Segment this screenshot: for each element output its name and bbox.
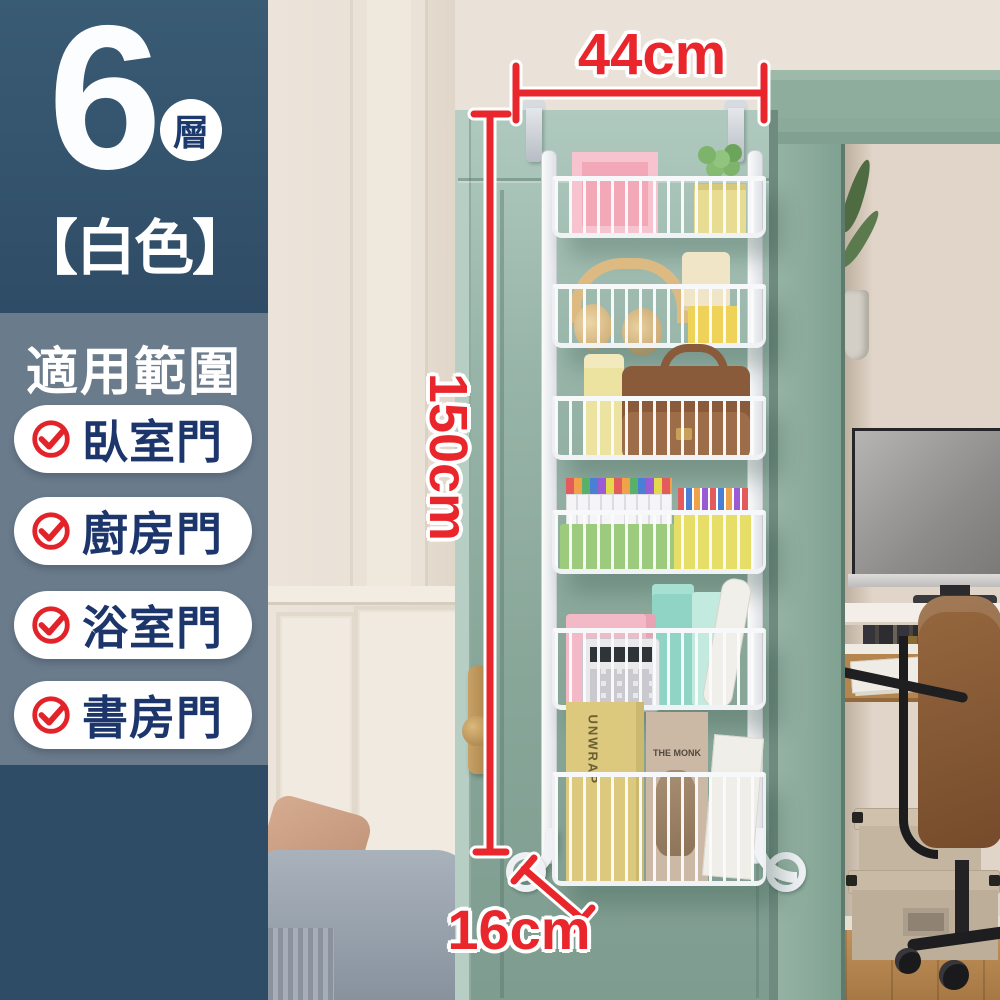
depth-dimension-label: 16cm	[439, 902, 599, 958]
box-label-slot	[903, 908, 949, 936]
wainscot-rail	[268, 586, 458, 605]
rack-tube-end	[506, 852, 546, 892]
chair-caster-wheel	[939, 960, 969, 990]
monitor-bottom-bar	[848, 574, 1000, 587]
applicable-item-label: 廚房門	[82, 498, 223, 564]
applicable-item-study-door: 書房門	[14, 681, 252, 749]
door-stile	[455, 110, 471, 1000]
rack-basket-2	[552, 284, 766, 348]
monitor-screen	[852, 428, 1000, 580]
applicable-item-label: 浴室門	[82, 592, 223, 658]
doorway-header-frame	[765, 70, 1000, 144]
chair-caster-wheel	[895, 948, 921, 974]
rack-tube-end	[766, 852, 806, 892]
rack-basket-5	[552, 628, 766, 710]
check-icon	[28, 416, 74, 462]
basket-wire-front	[552, 772, 766, 886]
magazine-title: THE MONK	[648, 748, 706, 758]
applicable-item-bedroom-door: 臥室門	[14, 405, 252, 473]
applicable-item-bathroom-door: 浴室門	[14, 591, 252, 659]
colored-pens	[678, 488, 748, 512]
applicable-item-label: 臥室門	[82, 406, 223, 472]
succulent-plant	[698, 146, 716, 164]
applicable-item-kitchen-door: 廚房門	[14, 497, 252, 565]
marker-caps	[566, 478, 672, 494]
check-icon	[28, 508, 74, 554]
rack-basket-6: UNWRAP THE MONK	[552, 772, 766, 886]
tier-unit-label: 層	[173, 104, 209, 156]
box-corner-clip	[846, 875, 857, 886]
height-dimension-label: 150cm	[421, 372, 475, 542]
sidebar-footer	[0, 765, 268, 1000]
basket-wire-front	[552, 284, 766, 348]
info-sidebar: 6 層 【白色】 適用範圍 臥室門 廚房門	[0, 0, 268, 1000]
color-variant-label: 【白色】	[0, 200, 268, 287]
basket-wire-front	[552, 628, 766, 710]
door-handle-knob	[462, 716, 492, 746]
basket-wire-front	[552, 510, 766, 574]
box-corner-clip	[989, 875, 1000, 886]
sofa-throw-blanket	[268, 928, 334, 1000]
rack-rail-left	[541, 150, 557, 864]
check-icon	[28, 692, 74, 738]
tier-banner: 6 層 【白色】	[0, 0, 268, 313]
door-panel-line	[500, 190, 504, 998]
product-showcase-image: UNWRAP THE MONK 44cm 150cm 16cm 6 層 【白色】…	[0, 0, 1000, 1000]
over-door-hook	[526, 108, 542, 162]
tier-count: 6	[40, 14, 170, 182]
basket-wire-front	[552, 176, 766, 238]
office-chair-back	[918, 596, 1000, 848]
width-dimension-label: 44cm	[552, 26, 752, 84]
chair-column	[955, 860, 969, 934]
basket-wire-front	[552, 396, 766, 460]
adjacent-room-view	[845, 144, 1000, 1000]
applicable-item-label: 書房門	[82, 682, 223, 748]
applicable-range-panel: 適用範圍 臥室門 廚房門 浴室門	[0, 313, 268, 765]
check-icon	[28, 602, 74, 648]
over-door-hook	[728, 108, 744, 162]
tier-unit-badge: 層	[160, 99, 222, 161]
rack-basket-1	[552, 176, 766, 238]
applicable-range-title: 適用範圍	[0, 330, 268, 405]
rack-basket-3	[552, 396, 766, 460]
rack-basket-4	[552, 510, 766, 574]
box-corner-clip	[852, 812, 863, 823]
glass-vase	[845, 290, 869, 360]
wall-molding-pilaster	[350, 0, 428, 592]
